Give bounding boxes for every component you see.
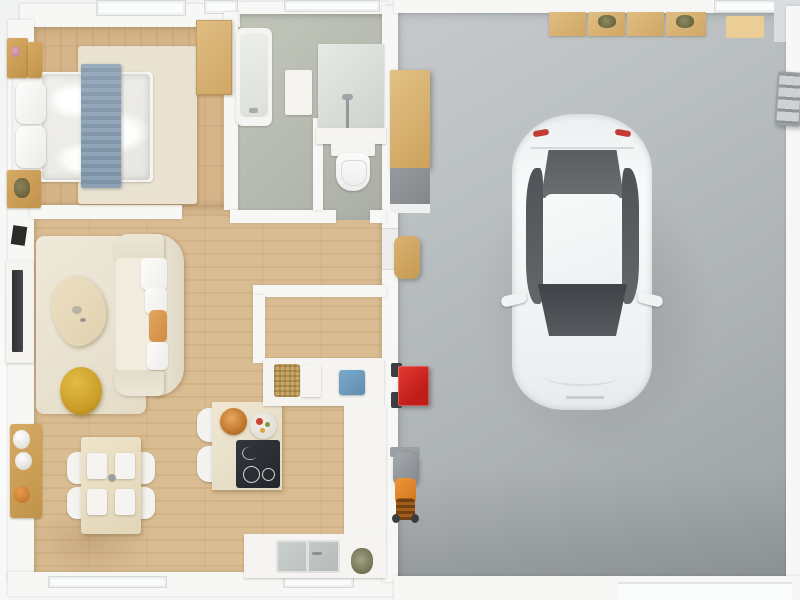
sofa-cushion-white-3 xyxy=(147,342,168,370)
mower-wheel-left xyxy=(392,514,400,523)
bed-pillow-top xyxy=(16,82,46,124)
nightstand-second xyxy=(28,42,42,78)
coffee-table-decor xyxy=(72,306,82,314)
sink-faucet-head xyxy=(342,94,353,100)
induction-cooktop xyxy=(236,440,280,488)
white-storage-box xyxy=(301,365,321,397)
table-centerpiece xyxy=(108,474,116,482)
nightstand-with-flowers xyxy=(7,38,28,78)
placemat-1 xyxy=(87,453,107,479)
blue-towel xyxy=(339,370,365,395)
placemat-2 xyxy=(87,489,107,515)
sink-faucet xyxy=(346,98,349,128)
dining-table xyxy=(81,437,141,534)
kitchen-plant xyxy=(351,548,373,574)
garage-top-window xyxy=(714,0,780,13)
metal-ladder xyxy=(774,71,800,127)
vegetable-bits xyxy=(256,418,263,425)
garage-floor-mat xyxy=(726,16,764,38)
floor-plan-render xyxy=(0,0,800,600)
sofa xyxy=(114,234,184,396)
sofa-arm-bottom xyxy=(114,368,164,396)
cooktop-burner-left xyxy=(243,466,260,483)
car-front-grille xyxy=(566,396,604,399)
sideboard-sphere-1 xyxy=(13,430,30,449)
toilet-seat-line xyxy=(341,160,367,186)
cooktop-burner-right xyxy=(262,468,275,481)
vegetable-plate xyxy=(250,412,277,439)
garage-door-panel xyxy=(618,582,792,600)
wall-art-black xyxy=(11,225,28,246)
sideboard-orange-bowl xyxy=(14,486,30,503)
car-trunk-line xyxy=(530,147,634,149)
red-tool-cart xyxy=(398,366,429,406)
tv-screen xyxy=(12,270,23,352)
bathtub-basin xyxy=(240,33,268,117)
bath-mat xyxy=(285,70,312,115)
car-rear-window xyxy=(541,150,624,198)
bathtub-faucet xyxy=(249,108,258,113)
mower-wheel-right xyxy=(411,514,419,523)
bathroom-bottom-wall-right xyxy=(370,210,386,223)
bedroom-window-left xyxy=(96,0,186,16)
bathroom-vanity-mirror xyxy=(318,44,384,136)
garage-cabinet-3 xyxy=(627,12,664,36)
orange-food-bowl xyxy=(220,408,247,435)
yellow-pouf xyxy=(60,367,102,415)
sofa-cushion-orange xyxy=(149,310,167,342)
sofa-cushion-white-1 xyxy=(141,258,167,290)
car-windshield xyxy=(536,284,629,336)
kitchen-faucet xyxy=(312,552,322,555)
placemat-4 xyxy=(115,489,135,515)
cabinet-plant-2 xyxy=(676,15,694,28)
garage-cabinet-1 xyxy=(549,12,586,36)
sink-divider xyxy=(306,542,309,571)
workbench-wood-top xyxy=(390,70,430,168)
sideboard-sphere-2 xyxy=(15,452,32,470)
placemat-3 xyxy=(115,453,135,479)
bed-blanket-blue xyxy=(81,64,121,188)
kitchen-right-counter xyxy=(344,406,386,536)
kitchen-left-stub-wall xyxy=(253,295,265,363)
car-side-window-right xyxy=(622,168,639,304)
workbench-white-ledge xyxy=(390,204,430,213)
wardrobe xyxy=(196,20,232,95)
flower-decor xyxy=(11,46,20,57)
car-roof xyxy=(544,194,621,288)
bedroom-living-wall xyxy=(30,205,182,219)
bathroom-bottom-wall-left xyxy=(230,210,336,223)
bottom-window-left xyxy=(48,576,167,588)
kitchen-top-wall xyxy=(253,285,386,297)
wicker-basket xyxy=(274,364,300,397)
car-side-window-left xyxy=(526,168,543,304)
bed-pillow-bottom xyxy=(16,126,46,168)
car-hood-arc xyxy=(545,368,619,386)
vanity-counter xyxy=(316,128,386,144)
garage-step-stool xyxy=(394,236,420,279)
workbench-gray-base xyxy=(390,168,430,204)
cabinet-plant-1 xyxy=(598,15,616,28)
bathroom-window xyxy=(284,0,380,12)
dresser-plant xyxy=(14,178,30,198)
